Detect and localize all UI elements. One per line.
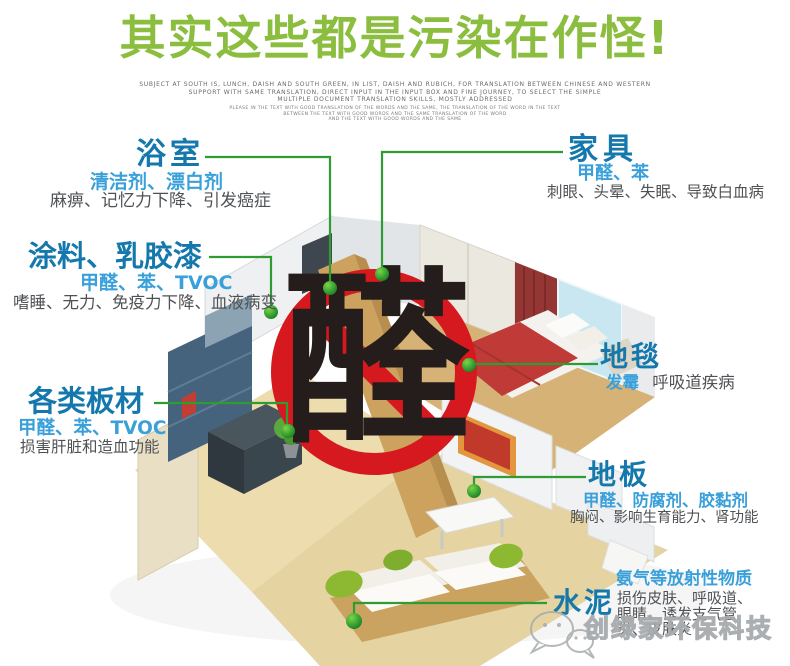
watermark-brand: 创绿家环保科技 <box>584 616 773 642</box>
infographic-root: 醛 其实这些都是污染在作怪! <box>0 0 790 666</box>
wechat-icon <box>0 0 790 666</box>
